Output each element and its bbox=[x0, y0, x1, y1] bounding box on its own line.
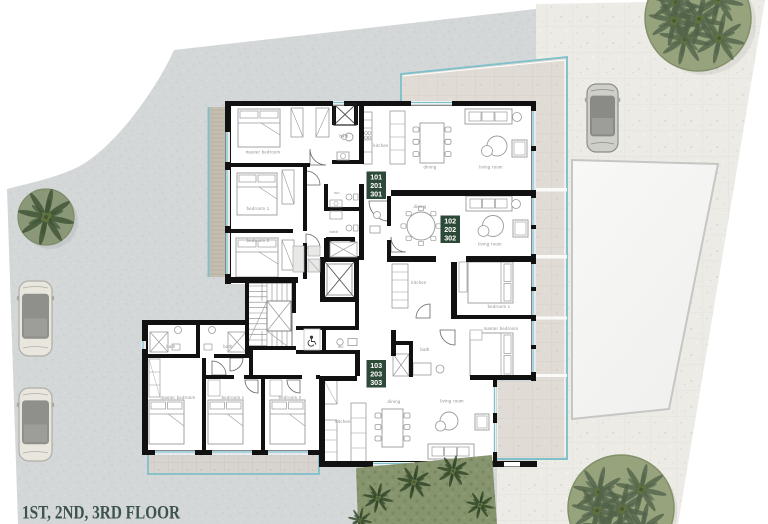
svg-text:302: 302 bbox=[444, 234, 456, 243]
svg-text:kitchen: kitchen bbox=[373, 143, 389, 148]
svg-text:bedroom 1: bedroom 1 bbox=[222, 395, 245, 400]
svg-text:bedroom 2: bedroom 2 bbox=[279, 395, 302, 400]
svg-text:dining: dining bbox=[388, 399, 401, 404]
svg-text:bath: bath bbox=[420, 347, 430, 352]
svg-text:master bedroom: master bedroom bbox=[246, 150, 281, 155]
svg-text:master bedroom: master bedroom bbox=[161, 395, 196, 400]
svg-text:301: 301 bbox=[370, 190, 382, 199]
svg-text:kitchen: kitchen bbox=[411, 280, 427, 285]
svg-text:living room: living room bbox=[440, 399, 464, 404]
svg-text:1ST, 2ND, 3RD FLOOR: 1ST, 2ND, 3RD FLOOR bbox=[22, 503, 180, 524]
svg-text:dining: dining bbox=[424, 165, 437, 170]
svg-text:bath: bath bbox=[330, 229, 339, 234]
svg-text:wc: wc bbox=[334, 190, 340, 195]
svg-text:bedroom 1: bedroom 1 bbox=[247, 206, 270, 211]
svg-text:kitchen: kitchen bbox=[335, 419, 351, 424]
svg-text:303: 303 bbox=[370, 378, 382, 387]
svg-text:living room: living room bbox=[479, 165, 503, 170]
svg-text:bath: bath bbox=[166, 344, 176, 349]
svg-text:dining: dining bbox=[414, 204, 427, 209]
svg-text:wc: wc bbox=[338, 344, 344, 349]
svg-text:master bedroom: master bedroom bbox=[484, 326, 519, 331]
svg-text:bath: bath bbox=[223, 344, 233, 349]
svg-text:living room: living room bbox=[478, 242, 502, 247]
svg-text:bath: bath bbox=[339, 134, 349, 139]
svg-text:bedroom 1: bedroom 1 bbox=[488, 304, 511, 309]
svg-text:bedroom 2: bedroom 2 bbox=[247, 238, 270, 243]
